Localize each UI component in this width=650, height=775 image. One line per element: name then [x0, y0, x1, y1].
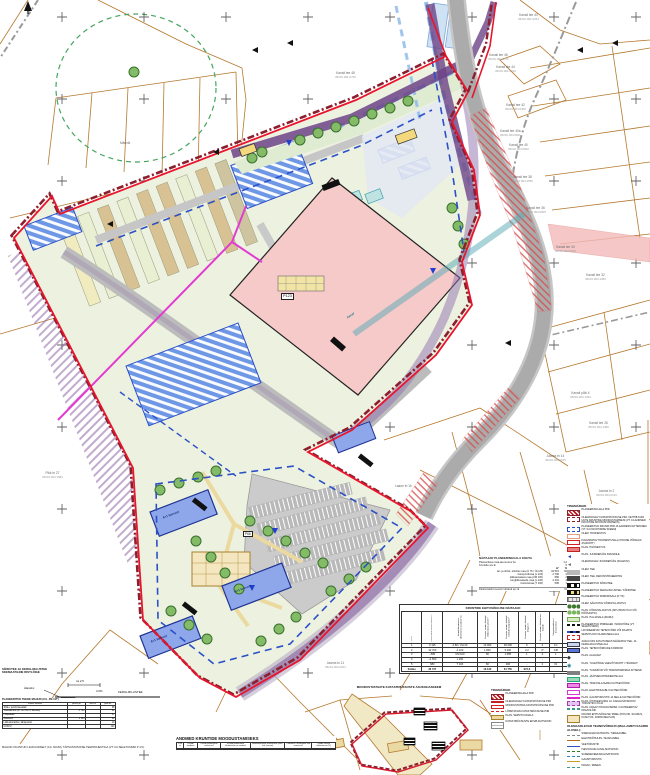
parcel-name: Männik — [120, 141, 130, 145]
legend-item-label: PLANEERITUD SÕIDUTEE — [582, 583, 650, 586]
legend-item-label: PLANEERITUD PIIRDEAED / MÜRATÕKE (VT. SE… — [582, 624, 650, 630]
data-table: Teeosa nimetuspikkus jmlaius mpind m²Sõi… — [2, 702, 116, 729]
cell — [184, 748, 198, 750]
legend-item-label: PLAN. GAASITORUSTIK JA SELLE KAITSEVÖÖND — [582, 697, 650, 700]
tree-icon — [326, 586, 336, 596]
parcel-label: Kanali tee 40a35201:004:0811 — [500, 130, 521, 137]
legend-item: PLANEERITUD SÕIDUTEE — [567, 583, 649, 589]
tree-icon — [206, 552, 216, 562]
legend-utilities-title: OLEMASOLEVAD TEHNOVÕRGUD (MAA-AMETI KAAR… — [567, 724, 649, 732]
cross-section-heading: SÕIDUTEE JA KERGLIIKLUSTEE SKEMAATILINE … — [2, 668, 122, 675]
legend-item: PLAN. HALJASALA (MURU) — [567, 617, 649, 623]
legend-utility-item: ELEKTRIÕHULIIN / MAAKAABEL — [567, 738, 649, 742]
legend-item: OLEM. HOONESTUS — [567, 533, 649, 539]
legend-item-label: KAVANDATAV HOONESTUSALA (HOONE VÕIMALIK … — [582, 540, 650, 546]
parcel-label: Jaama tn 235201:004:0120 — [596, 490, 617, 497]
legend-item: OLEMASOLEV KATASTRIÜKSUSE PIIR, KEHTIB K… — [567, 517, 649, 525]
inset-legend: TINGMÄRGID PLANEERINGUALA PIIR OLEMASOLE… — [491, 688, 565, 730]
legend-swatch-icon — [567, 610, 580, 615]
inset-legend-swatch-icon — [491, 705, 504, 709]
legend-item: PLANEERITUD KERGLIIKLUSTEE / KÕNNITEE — [567, 590, 649, 596]
cross-section-heading-line2: SKEMAATILINE RISTLÕIGE — [2, 671, 122, 674]
tree-icon — [361, 562, 371, 572]
header-cell: Planeeritud krundi suurus m² — [422, 611, 443, 643]
utility-line-icon — [567, 746, 580, 748]
parcel-code: 35201:004:1981 — [42, 476, 63, 479]
legend-item: OLEM. TEE — [567, 569, 649, 575]
tree-icon — [281, 536, 291, 546]
cross-section-slope-label: i=2% — [96, 689, 103, 693]
cell — [198, 748, 221, 750]
cell — [177, 748, 184, 750]
legend-item: PLANEERINGUALA PIIR — [567, 509, 649, 516]
summary-footer-label: Parkimiskohti suurim lubatud arv tk — [479, 588, 519, 591]
summary-title: NÄITAJAD PLANEERINGUALA KOHTA — [479, 556, 567, 560]
tree-icon — [447, 203, 457, 213]
legend-item: SERVITUUDI VAJADUSEGA ALA — [567, 634, 649, 640]
parcel-code: 35201:004:0400 — [505, 108, 526, 111]
cell — [67, 725, 85, 729]
parcel-code: 35201:004:1350 — [585, 278, 606, 281]
parcel-label: Laane tn 1b — [395, 485, 412, 489]
inset-map-title: MOODUSTATAVATE KATASTRIÜKSUSTE ASUKOH​AS… — [303, 685, 495, 689]
tree-icon — [367, 109, 377, 119]
header-cell: Tulepüsivusklass / korruselisus — [549, 611, 562, 643]
tree-icon — [211, 466, 221, 476]
road-volumes-table: PLANEERITUD TEEDE MAHUD (CA. JM / M²) Te… — [2, 698, 116, 729]
cell: KOKKU — [3, 725, 68, 729]
legend-item-label: OLEM. SÄILITATAV KÕRGHALJASTUS — [582, 603, 650, 606]
tree-icon — [184, 620, 194, 630]
legend-swatch-icon — [567, 635, 580, 640]
parcel-label: Kanali põik 435201:004:1060 — [570, 392, 591, 399]
parcel-label: Kanali tee 3235201:004:1350 — [585, 274, 606, 281]
legend-item: PLAN. JUURDEPÄÄS KRUNDILE — [567, 554, 649, 561]
tree-icon — [245, 516, 255, 526]
parcel-label: Kanali tee 4235201:004:0400 — [505, 104, 526, 111]
legend-utility-label: GAASITORUSTIK — [582, 759, 650, 762]
legend-utility-item: GAASITORUSTIK — [567, 759, 649, 763]
legend-item-label: PLANEERITUD KRUNDI PIIR JA AADRESSI ETTE… — [582, 526, 650, 532]
legend-item: PLAN. JÄÄTMEKONTEINERITE ALA — [567, 676, 649, 682]
data-table: Pos nrPlaneeritud krundi suurus m²Krundi… — [401, 611, 585, 673]
legend-item: PLAN. GAASITORUSTIK JA SELLE KAITSEVÖÖND — [567, 697, 649, 700]
legend-item: PLAN. ÜHISVEEVÄRGI JA -KANALISATSIOONI T… — [567, 701, 649, 707]
legend-swatch-icon — [567, 597, 580, 602]
legend-swatch-icon — [567, 540, 580, 545]
north-indicator: s — [20, 1, 36, 16]
legend-swatch-icon — [567, 631, 580, 633]
legend-item: PLAN. ALAJAAM — [567, 655, 649, 662]
inset-legend-swatch-icon — [491, 694, 504, 700]
legend-swatch-icon — [567, 715, 580, 723]
utility-line-icon — [567, 751, 580, 753]
legend-item-label: PLAN. JÄÄTMEKONTEINERITE ALA — [582, 676, 650, 679]
legend-utility-label: ELEKTRIÕHULIIN / MAAKAABEL — [582, 738, 650, 741]
legend-utility-item: KRAAV / DREEN — [567, 765, 649, 769]
summary-footer: Parkimiskohti suurim lubatud arv tk 31 — [479, 587, 567, 592]
tree-icon — [274, 624, 284, 634]
parcel-label: Kanali tee 3435201:004:0540 — [555, 246, 576, 253]
legend-swatch-icon — [567, 624, 580, 626]
legend-swatch-icon — [567, 570, 580, 575]
parcel-label: Kanali tee 4335201:001:0264 — [518, 14, 539, 21]
parcel-label: Jaama tn 1435201:004:0075 — [545, 455, 566, 462]
utility-line-icon — [567, 740, 580, 742]
parcel-label: Pikk tn 2735201:004:1981 — [42, 472, 63, 479]
tree-icon — [385, 103, 395, 113]
legend-item: AVALIKUKS KASUTUSEKS MÄÄRATAV TEE- JA KE… — [567, 641, 649, 647]
parcel-label: Kanali tee 4635201:001:0711 — [488, 54, 509, 61]
tree-icon — [295, 135, 305, 145]
total-cell: 36 737 — [422, 667, 443, 672]
plot-formation-table: ANDMED KRUNTIDE MOODUSTAMISEKS Pos nrKru… — [176, 736, 336, 775]
header-cell: Hoonete suurim lubatud arv krundil — [536, 611, 549, 643]
inset-legend-item-label: MOODUSTATAVA KATASTRIÜKSUSE PIIR — [506, 705, 566, 708]
inset-legend-item-label: LÕPETATAVA KATASTRIÜKSUSE PIIR — [506, 711, 566, 714]
tree-icon — [313, 128, 323, 138]
parcel-label: Kanali tee 3635201:004:0905 — [525, 207, 546, 214]
header-cell: Pos nr — [402, 611, 422, 643]
parcel-label: Kanali tee 3835201:004:1550 — [512, 176, 533, 183]
legend-swatch-icon — [567, 642, 580, 647]
tree-icon — [331, 122, 341, 132]
legend-item: PLAN. HOONESTUS — [567, 547, 649, 553]
parcel-code: 35201:004:1060 — [570, 396, 591, 399]
legend-item: PLAN. TRAFOALAJAAMA KAITSEVÖÖND — [567, 683, 649, 689]
parcel-code: 35201:004:0201 — [325, 666, 346, 669]
usage-row-pct: 1 — [559, 582, 567, 585]
inset-legend-item: LÕPETATAVA KATASTRIÜKSUSE PIIR — [491, 711, 565, 714]
inset-legend-item-label: KATASTRIÜKSUSTE EKSPLIKATSIOON — [506, 721, 566, 724]
usage-row: tootmismaa (T 100) 595 1 — [479, 582, 567, 585]
legend-item-label: PLAN. KRAAVI HOOLDUSRIBA / LIKVIDEERITAV… — [582, 707, 650, 713]
legend-swatch-icon — [567, 527, 580, 532]
legend-item: KAVANDATAV HOONESTUSALA (HOONE VÕIMALIK … — [567, 540, 649, 546]
legend-item-label: OLEM. TEE — [582, 569, 650, 572]
legend-swatch-icon — [567, 510, 580, 516]
legend-swatch-icon — [567, 554, 580, 560]
north-letter: s — [20, 11, 36, 16]
header-cell: Hoonete suurim lubatud kõrgus m — [518, 611, 536, 643]
total-cell: 16 120 — [477, 667, 497, 672]
legend-item-label: PLAN. KÕRGHALJASTUS (ISTUTATAV PUU VÕI P… — [582, 610, 650, 616]
legend-utility-item: VEETORUSTIK — [567, 744, 649, 748]
legend-item: PLAN. KÕRGHALJASTUS (ISTUTATAV PUU VÕI P… — [567, 610, 649, 616]
tree-icon — [247, 153, 257, 163]
legend-item-label: PLAN. ELEKTRIKAABLI KAITSEVÖÖND — [582, 690, 650, 693]
utility-line-icon — [567, 756, 580, 758]
inset-legend-swatch-icon — [491, 701, 504, 703]
usage-row-label: tootmismaa (T 100) — [479, 582, 545, 585]
parcel-label: Kanali tee 4035201:004:0810 — [508, 144, 529, 151]
legend-item-label: OLEM. TEE, REKONSTRUEERITAV — [582, 576, 650, 579]
header-cell: Hoonete suurim lubatud suletud brutopind… — [498, 611, 518, 643]
tree-icon — [263, 526, 273, 536]
parcel-code: 35201:004:1480 — [588, 426, 609, 429]
parcel-label: Kanali tee 4435201:001:0910 — [495, 66, 516, 73]
tree-icon — [193, 472, 203, 482]
legend-item-label: KRUNDI EHITUSÕIGUSE TABEL (POS NR, SUURU… — [582, 714, 650, 720]
parcel-label: Kanali tee 2635201:004:1480 — [588, 422, 609, 429]
parcel-label: Jaama tn 1135201:004:0201 — [325, 662, 346, 669]
plan-summary-block: NÄITAJAD PLANEERINGUALA KOHTA Planeerita… — [479, 556, 567, 591]
legend-item: PLAN. ELEKTRIKAABLI KAITSEVÖÖND — [567, 690, 649, 696]
legend-swatch-icon — [567, 583, 580, 588]
legend-item-label: PLANEERITUD KERGLIIKLUSTEE / KÕNNITEE — [582, 590, 650, 593]
total-cell: 972,6 — [518, 667, 536, 672]
parcel-label: Kanali tee 4835201:001:0740 — [335, 72, 356, 79]
cell: 124 — [100, 725, 115, 729]
legend-item: PLANEERITUD KRUNDI PIIR JA AADRESSI ETTE… — [567, 526, 649, 532]
legend-item-label: SERVITUUDI VAJADUSEGA ALA — [582, 634, 650, 637]
legend-swatch-icon — [567, 648, 580, 653]
building-rights-table: KRUNTIDE EHITUSÕIGUSE NÄITAJAD Pos nrPla… — [399, 604, 587, 674]
usage-row-m2: 595 — [545, 582, 559, 585]
parcel-code: 35201:004:0811 — [500, 134, 521, 137]
legend-item-label: PLAN. ALAJAAM — [582, 655, 650, 658]
cell — [285, 748, 312, 750]
legend-item-label: PLAN. TUGIMÜÜR VÕI TRANSPORDIMAA KITSEND — [582, 670, 650, 673]
header-cell: Krundi kasutamise sihtotstarve (osakaal … — [443, 611, 478, 643]
parcel-label: Männik — [120, 142, 130, 146]
inset-legend-swatch-icon — [491, 711, 504, 712]
legend-item-label: PLAN. HALJASALA (MURU) — [582, 617, 650, 620]
inset-legend-item-label: PLAN. SERVITUUDIALA — [506, 715, 566, 718]
legend-item: PLAN. TEHNOVÕRKUDE KORIDOR — [567, 648, 649, 654]
tree-icon — [174, 478, 184, 488]
cross-section-edge-label: Äärekivi — [24, 686, 34, 690]
total-cell: 61 755 — [498, 667, 518, 672]
legend-swatch-icon — [567, 683, 580, 688]
legend-item: PLAN. TULETÕRJE VEEVÕTUKOHT / HÜDRANT — [567, 663, 649, 670]
cross-section-road-label: KERGLIIKLUSTEE — [118, 690, 143, 694]
legend-item-label: PLAN. ÜHISVEEVÄRGI JA -KANALISATSIOONI T… — [582, 701, 650, 707]
parcel-code: 35201:004:1550 — [512, 180, 533, 183]
legend-utility-item: SADEMEVEEKANALISATSIOON — [567, 754, 649, 758]
parcel-name: Laane tn 1b — [395, 484, 412, 488]
legend-item: KRUNDI EHITUSÕIGUSE TABEL (POS NR, SUURU… — [567, 714, 649, 723]
utility-line-icon — [567, 735, 580, 737]
tree-icon — [191, 536, 201, 546]
parcel-code: 35201:004:0905 — [525, 211, 546, 214]
utility-line-icon — [567, 767, 580, 769]
legend-item-label: PLAN. TRAFOALAJAAMA KAITSEVÖÖND — [582, 683, 650, 686]
legend-utility-label: ISEVOOLNE KANALISATSIOON — [582, 749, 650, 752]
legend-item-label: PLAN. HOONESTUS — [582, 547, 650, 550]
legend-item: PLANEERITUD PIIRDEAED / MÜRATÕKE (VT. SE… — [567, 624, 649, 630]
legend-swatch-icon — [567, 534, 580, 539]
cross-section-dim-label: ca 2,5 — [76, 679, 84, 683]
legend-item-label: PLANEERINGUALA PIIR — [582, 509, 650, 512]
legend-swatch-icon — [567, 604, 580, 609]
legend-item: PLAN. KRAAVI HOOLDUSRIBA / LIKVIDEERITAV… — [567, 707, 649, 713]
legend-item-label: PLAN. TULETÕRJE VEEVÕTUKOHT / HÜDRANT — [582, 663, 650, 666]
formation-table-title: ANDMED KRUNTIDE MOODUSTAMISEKS — [176, 736, 336, 741]
cell — [312, 748, 336, 750]
legend-item-label: AVALIKUKS KASUTUSEKS MÄÄRATAV TEE- JA KE… — [582, 641, 650, 647]
cell — [251, 748, 285, 750]
legend-item-label: OLEMASOLEV KATASTRIÜKSUSE PIIR, KEHTIB K… — [582, 517, 650, 525]
tree-icon — [202, 634, 212, 644]
inset-legend-item: KATASTRIÜKSUSTE EKSPLIKATSIOON — [491, 721, 565, 729]
legend-swatch-icon — [567, 547, 580, 552]
legend-swatch-icon — [567, 671, 580, 675]
legend-utility-label: KRAAV / DREEN — [582, 765, 650, 768]
inset-legend-swatch-icon — [491, 715, 504, 720]
legend-swatch-icon — [567, 617, 580, 622]
data-table: Pos nrKrundi aadressKrundi planeeritud s… — [176, 742, 336, 751]
parcel-code: 35201:004:0120 — [596, 494, 617, 497]
legend-item: OLEM. TEE, REKONSTRUEERITAV — [567, 576, 649, 582]
inset-legend-item: PLAN. SERVITUUDIALA — [491, 715, 565, 721]
legend-swatch-icon — [567, 697, 580, 699]
inset-legend-item: MOODUSTATAVA KATASTRIÜKSUSE PIIR — [491, 705, 565, 710]
legend-swatch-icon — [567, 562, 580, 568]
cell — [220, 748, 250, 750]
legend-item-label: PLAN. TEHNOVÕRKUDE KORIDOR — [582, 648, 650, 651]
legend-swatch-icon — [567, 690, 580, 695]
legend-item: PLANEERITUD PARKIMISALA (P, TK) — [567, 596, 649, 602]
legend-swatch-icon — [567, 708, 580, 710]
legend-item-label: OLEM. HOONESTUS — [582, 533, 650, 536]
utility-line-icon — [567, 761, 580, 763]
legend-item-label: PLANEERITUD PARKIMISALA (P, TK) — [582, 596, 650, 599]
legend-swatch-icon — [567, 655, 580, 661]
legend-swatch-icon — [567, 663, 580, 669]
legend-item-label: PLAN. JUURDEPÄÄS KRUNDILE — [582, 554, 650, 557]
tree-icon — [291, 612, 301, 622]
parcel-code: 35201:001:0711 — [488, 58, 509, 61]
tree-icon — [300, 548, 310, 558]
detail-plan-sheet[interactable]: s Kanali tee 4335201:001:0264Kanali tee … — [0, 0, 650, 775]
legend-swatch-icon — [567, 517, 580, 522]
inset-legend-item-label: PLANEERINGUALA PIIR — [506, 693, 566, 696]
inset-legend-swatch-icon — [491, 722, 504, 729]
rights-table-title: KRUNTIDE EHITUSÕIGUSE NÄITAJAD — [401, 606, 585, 610]
header-cell: Hoonete suurim lubatud ehitisealune pind… — [477, 611, 497, 643]
parcel-code: 35201:001:0264 — [518, 18, 539, 21]
parcel-code: 35201:001:0740 — [335, 76, 356, 79]
plot-number-small-label: P66 — [243, 531, 253, 537]
legend-swatch-icon — [567, 590, 580, 595]
legend-swatch-icon — [567, 701, 580, 706]
legend-item: OLEM. SÄILITATAV KÕRGHALJASTUS — [567, 603, 649, 609]
legend-utility-label: VEETORUSTIK — [582, 744, 650, 747]
legend: TINGMÄRGID PLANEERINGUALA PIIR OLEMASOLE… — [567, 504, 649, 774]
tree-icon — [257, 147, 267, 157]
legend-utility-label: SADEMEVEEKANALISATSIOON — [582, 754, 650, 757]
inset-legend-item: PLANEERINGUALA PIIR — [491, 693, 565, 700]
parcel-code: 35201:004:0540 — [555, 250, 576, 253]
tree-icon — [318, 558, 328, 568]
legend-swatch-icon — [567, 677, 580, 682]
tree-icon — [349, 116, 359, 126]
total-cell — [443, 667, 478, 672]
total-cell — [549, 667, 562, 672]
plot-number-label: P123 — [281, 293, 294, 300]
cell — [86, 725, 101, 729]
legend-swatch-icon — [567, 576, 580, 581]
legend-item-label: OLEMASOLEV JUURDEPÄÄS (SULETAV) — [582, 561, 650, 564]
tree-icon — [256, 636, 266, 646]
total-cell — [536, 667, 549, 672]
tree-icon — [166, 606, 176, 616]
parcel-code: 35201:004:0075 — [545, 459, 566, 462]
legend-utility-label: SIDEKANALISATSIOON / SIDEKAABEL — [582, 733, 650, 736]
legend-item: OLEMASOLEV JUURDEPÄÄS (SULETAV) — [567, 561, 649, 568]
parcel-code: 35201:001:0910 — [495, 70, 516, 73]
tree-icon — [220, 568, 230, 578]
total-cell: Kokku — [402, 667, 422, 672]
tree-icon — [403, 96, 413, 106]
parcel-code: 35201:004:0810 — [508, 148, 529, 151]
